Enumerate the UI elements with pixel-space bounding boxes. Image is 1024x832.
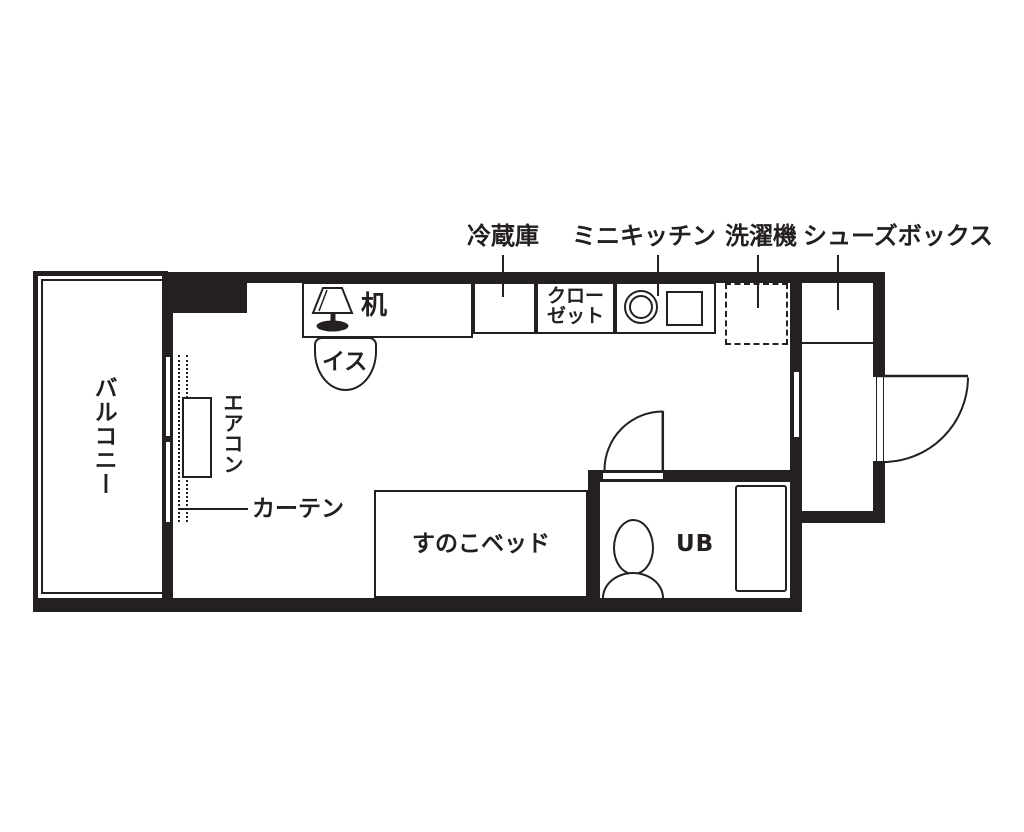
entrance-door-swing-arc — [883, 378, 968, 463]
mini-kitchen-leader — [657, 255, 659, 296]
bottom-wall — [33, 598, 802, 612]
washing-machine-label: 洗濯機 — [725, 224, 797, 249]
unit-bath-label: UB — [676, 532, 714, 556]
bathtub — [735, 485, 787, 592]
mini-kitchen-label: ミニキッチン — [572, 224, 716, 249]
refrigerator-leader — [502, 255, 504, 297]
kitchen-sink-icon — [666, 291, 703, 326]
entrance-bottom-wall — [790, 511, 885, 523]
kitchen-entry-wall — [790, 272, 802, 612]
air-conditioner-unit — [182, 397, 212, 478]
balcony-label: バルコニー — [91, 376, 115, 496]
curtain-dashed-line-outer — [178, 355, 180, 522]
toilet-icon — [613, 519, 654, 575]
top-left-pillar — [162, 272, 247, 313]
curtain-label: カーテン — [252, 497, 344, 521]
window-meeting-break — [166, 436, 170, 442]
curtain-leader-line — [179, 508, 248, 510]
chair-label: イス — [322, 350, 367, 374]
washing-machine-leader — [757, 255, 759, 308]
toilet-base — [602, 572, 664, 598]
room-door-swing-arc — [605, 412, 664, 471]
desk-label: 机 — [361, 293, 387, 320]
closet-label-line2: ゼット — [547, 305, 604, 327]
floor-plan: 冷蔵庫 ミニキッチン 洗濯機 シューズボックス 机 イス クロー ゼット バルコ… — [0, 0, 1024, 832]
shoe-box-leader — [837, 255, 839, 310]
kitchen-burner-inner-ring — [629, 295, 653, 319]
air-conditioner-label: エアコン — [220, 392, 242, 474]
refrigerator-label: 冷蔵庫 — [467, 224, 539, 249]
desk — [302, 282, 473, 338]
entrance-jamb-line-1 — [876, 377, 878, 461]
refrigerator-space — [473, 282, 536, 334]
ub-left-wall — [588, 470, 600, 612]
shoe-box-divider — [802, 342, 873, 345]
entry-opening-slit — [794, 372, 799, 437]
closet-label-line1: クロー — [547, 285, 604, 307]
ub-door-slit — [603, 473, 663, 479]
entrance-jamb-line-2 — [883, 377, 885, 461]
slatted-bed-label: すのこベッド — [412, 532, 550, 556]
shoe-box-label: シューズボックス — [803, 224, 993, 249]
closet-label: クロー ゼット — [542, 287, 609, 327]
